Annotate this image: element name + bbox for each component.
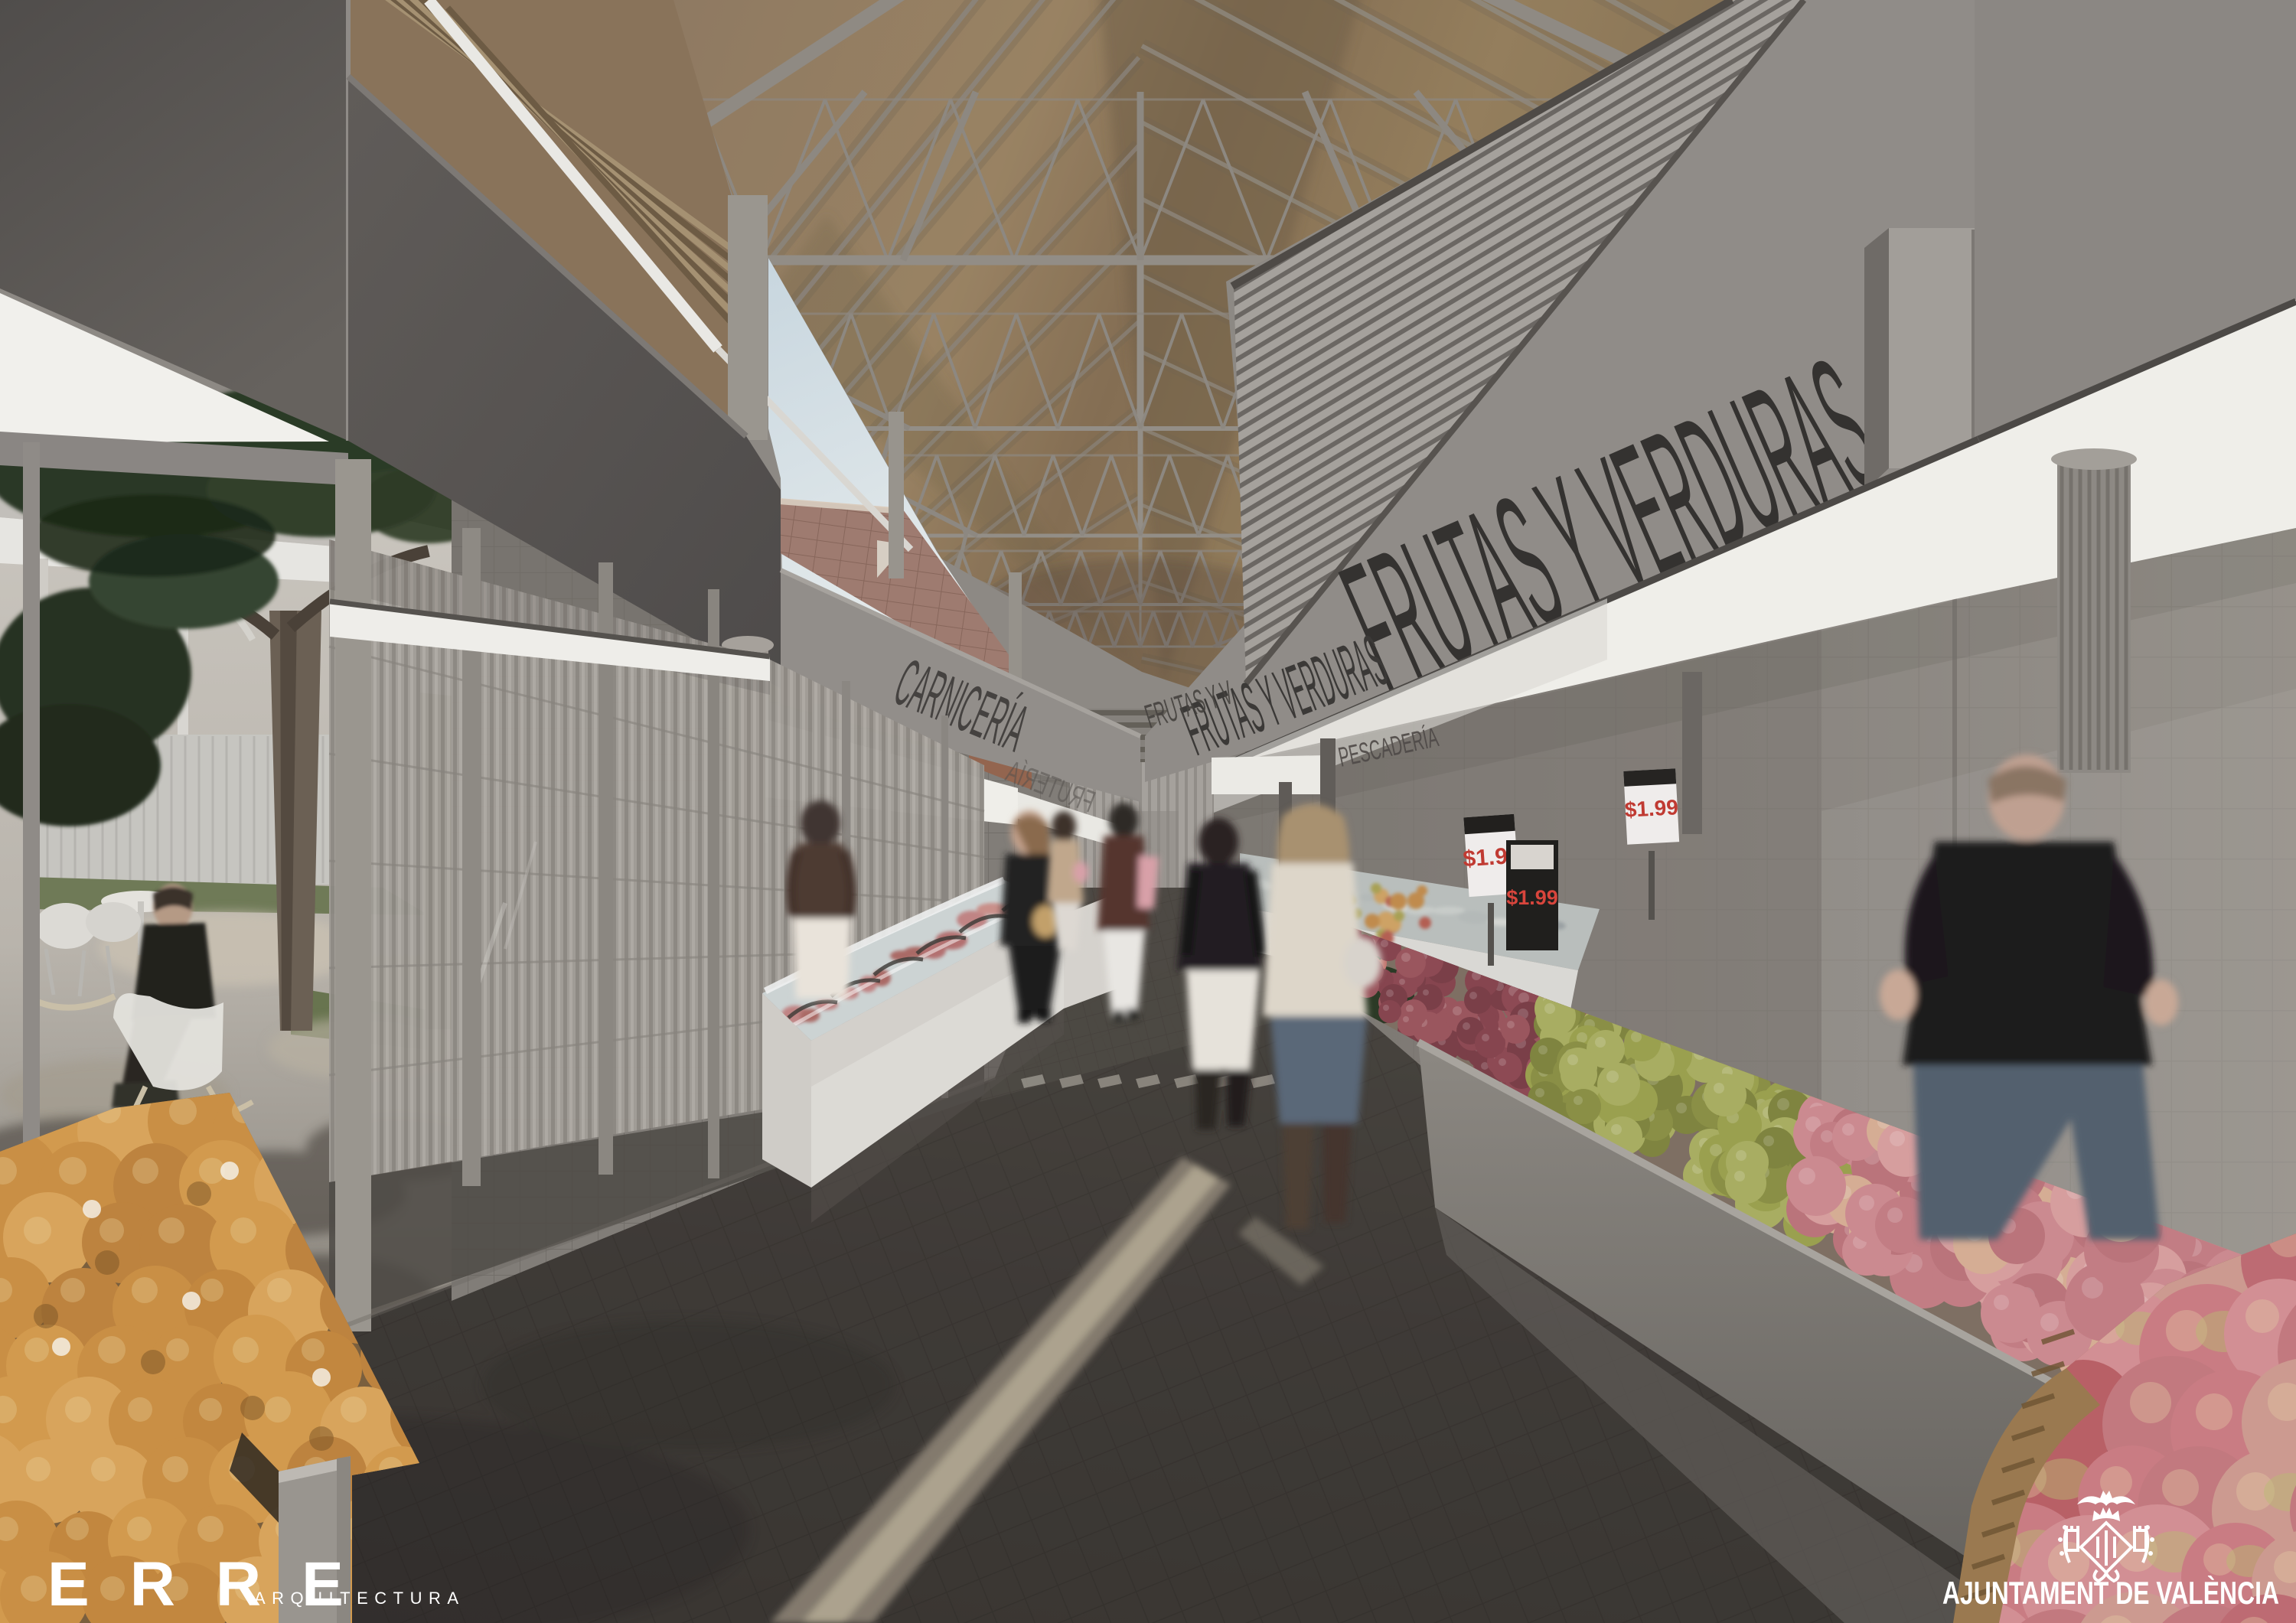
- svg-text:$1.99: $1.99: [1506, 886, 1558, 909]
- svg-text:ARQUITECTURA: ARQUITECTURA: [254, 1589, 465, 1608]
- svg-text:AJUNTAMENT DE VALÈNCIA: AJUNTAMENT DE VALÈNCIA: [1942, 1575, 2279, 1611]
- svg-text:ERRE: ERRE: [47, 1550, 384, 1619]
- svg-text:$1.99: $1.99: [1624, 795, 1679, 822]
